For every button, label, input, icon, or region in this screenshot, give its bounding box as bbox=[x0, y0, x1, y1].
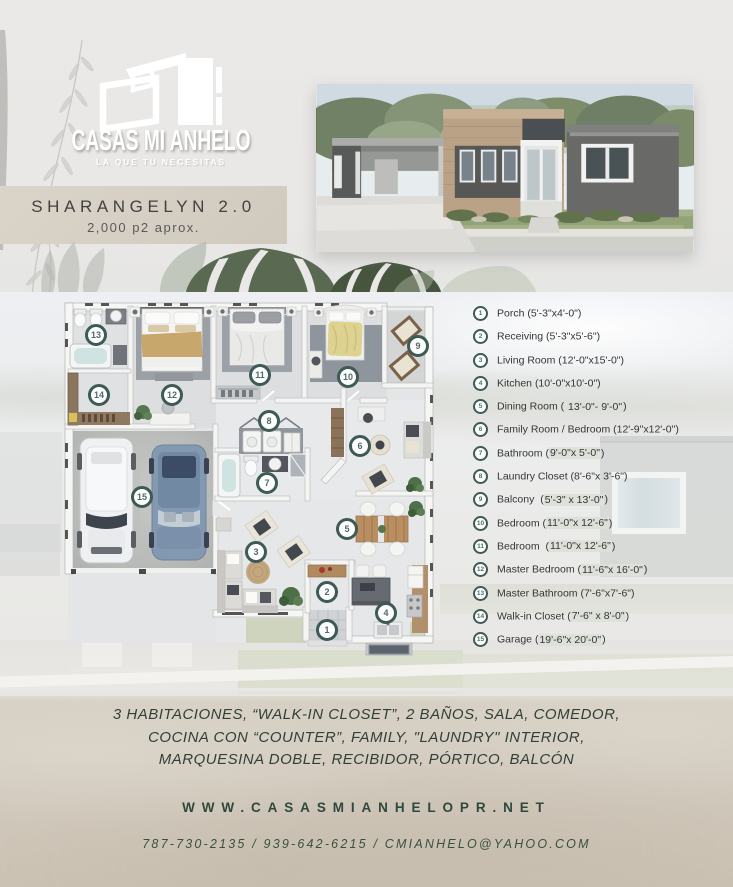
svg-text:9: 9 bbox=[415, 341, 420, 351]
svg-text:13: 13 bbox=[91, 330, 101, 340]
svg-text:10: 10 bbox=[343, 372, 353, 382]
svg-text:1: 1 bbox=[324, 625, 329, 635]
svg-text:6: 6 bbox=[357, 441, 362, 451]
svg-text:5: 5 bbox=[344, 524, 349, 534]
svg-text:7: 7 bbox=[264, 478, 269, 488]
svg-text:8: 8 bbox=[266, 416, 271, 426]
svg-text:14: 14 bbox=[94, 390, 104, 400]
svg-text:4: 4 bbox=[383, 608, 388, 618]
svg-text:15: 15 bbox=[137, 492, 147, 502]
svg-text:12: 12 bbox=[167, 390, 177, 400]
svg-text:2: 2 bbox=[324, 587, 329, 597]
svg-text:3: 3 bbox=[253, 547, 258, 557]
svg-text:11: 11 bbox=[255, 370, 265, 380]
